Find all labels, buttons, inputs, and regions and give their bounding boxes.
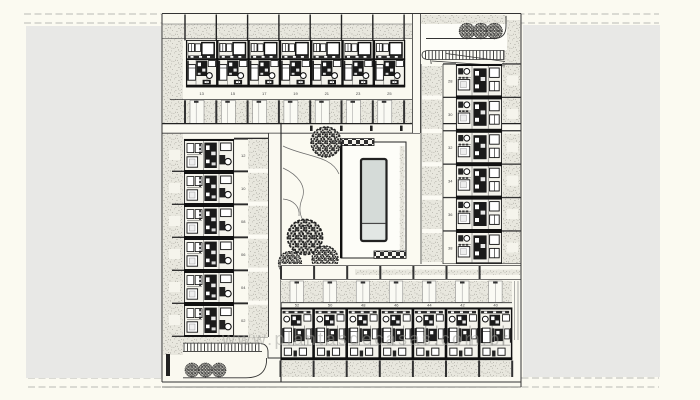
svg-text:50: 50 [328, 303, 333, 308]
svg-text:17: 17 [262, 91, 267, 96]
svg-text:04: 04 [241, 285, 246, 290]
svg-text:08: 08 [241, 219, 246, 224]
svg-text:32: 32 [448, 145, 453, 150]
svg-text:42: 42 [460, 303, 465, 308]
svg-text:46: 46 [394, 303, 399, 308]
svg-text:06: 06 [241, 252, 246, 257]
svg-text:25: 25 [387, 91, 392, 96]
svg-text:52: 52 [295, 303, 300, 308]
svg-text:02: 02 [241, 318, 246, 323]
svg-text:48: 48 [361, 303, 366, 308]
svg-text:23: 23 [356, 91, 361, 96]
svg-text:15: 15 [231, 91, 236, 96]
svg-text:19: 19 [293, 91, 298, 96]
svg-text:28: 28 [448, 78, 453, 83]
svg-text:30: 30 [448, 112, 453, 117]
svg-text:44: 44 [427, 303, 432, 308]
svg-text:12: 12 [241, 153, 246, 158]
svg-text:13: 13 [199, 91, 204, 96]
svg-text:36: 36 [448, 212, 453, 217]
svg-text:www.plantasdecasas.com.br: www.plantasdecasas.com.br [221, 329, 510, 349]
svg-text:34: 34 [448, 179, 453, 184]
svg-text:40: 40 [493, 303, 498, 308]
svg-text:38: 38 [448, 245, 453, 250]
svg-text:21: 21 [325, 91, 330, 96]
svg-text:10: 10 [241, 186, 246, 191]
